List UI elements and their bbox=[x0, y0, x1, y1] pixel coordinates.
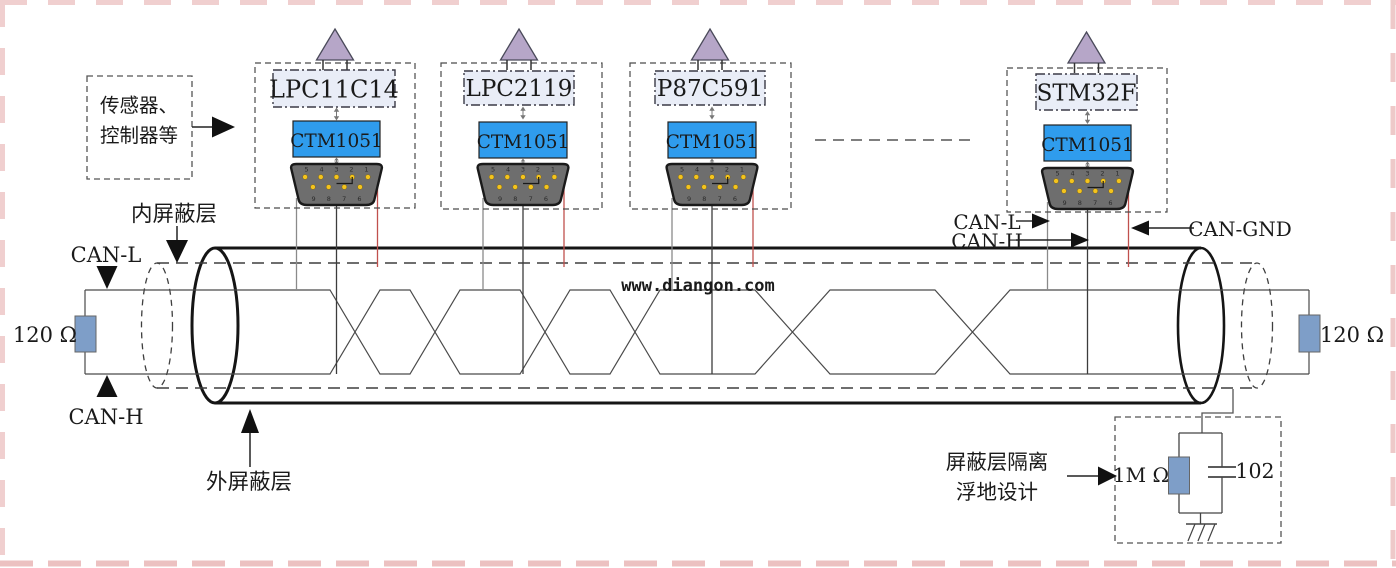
outer-shield-arrow bbox=[241, 409, 259, 433]
db9-pins-top-3: 5 4 3 2 1 bbox=[680, 166, 744, 174]
label-can-l-left: CAN-L bbox=[71, 243, 142, 289]
outer-shield bbox=[192, 248, 1224, 403]
inner-shield-arrow bbox=[166, 240, 188, 263]
can-bus-topology-diagram: 120 Ω 120 Ω 1M Ω 102 屏蔽层隔离 浮地设计 bbox=[0, 0, 1396, 568]
svg-text:CAN-H: CAN-H bbox=[68, 405, 143, 429]
transceiver-label-4: CTM1051 bbox=[1041, 135, 1134, 156]
ground-resistor bbox=[1169, 457, 1190, 494]
terminator-left: 120 Ω bbox=[13, 290, 96, 374]
can-node-3: P87C591 CTM1051 5 4 3 2 1 9 8 7 6 bbox=[630, 29, 791, 209]
svg-text:内屏蔽层: 内屏蔽层 bbox=[131, 202, 217, 227]
terminator-resistor-right bbox=[1299, 315, 1320, 352]
sensor-label-line2: 控制器等 bbox=[100, 124, 178, 147]
svg-text:CAN-H: CAN-H bbox=[951, 229, 1022, 253]
sensor-label-line1: 传感器、 bbox=[100, 94, 178, 117]
db9-pins-top-1: 5 4 3 2 1 bbox=[305, 166, 369, 174]
mcu-label-3: P87C591 bbox=[657, 76, 763, 102]
sensor-box: 传感器、 控制器等 bbox=[87, 76, 235, 179]
db9-pins-top-2: 5 4 3 2 1 bbox=[491, 166, 555, 174]
ground-capacitor bbox=[1208, 467, 1236, 477]
terminator-right: 120 Ω bbox=[1299, 290, 1384, 374]
bus-link-arrow-icon bbox=[1085, 111, 1090, 124]
terminator-left-label: 120 Ω bbox=[13, 323, 77, 347]
bus-link-arrow-icon bbox=[520, 107, 525, 120]
label-can-gnd: CAN-GND bbox=[1131, 217, 1292, 241]
label-inner-shield: 内屏蔽层 bbox=[131, 202, 217, 263]
shield-note-line1: 屏蔽层隔离 bbox=[946, 450, 1049, 474]
transceiver-label-3: CTM1051 bbox=[666, 132, 759, 153]
svg-text:外屏蔽层: 外屏蔽层 bbox=[206, 470, 292, 495]
bus-link-arrow-icon bbox=[334, 108, 339, 121]
can-h-node-arrow bbox=[1071, 233, 1089, 248]
label-can-h-left: CAN-H bbox=[68, 375, 143, 429]
can-node-1: LPC11C14 CTM1051 5 4 3 2 1 9 8 7 6 bbox=[255, 29, 415, 208]
terminator-resistor-left bbox=[75, 316, 96, 352]
can-h-left-arrow bbox=[97, 375, 118, 397]
antenna-icon bbox=[501, 29, 538, 70]
shield-note: 屏蔽层隔离 浮地设计 bbox=[946, 450, 1117, 504]
db9-pins-top-4: 5 4 3 2 1 bbox=[1056, 170, 1120, 178]
bus-link-arrow-icon bbox=[709, 107, 714, 120]
antenna-icon bbox=[1068, 32, 1105, 73]
can-gnd-arrow bbox=[1131, 221, 1149, 236]
sensor-arrow bbox=[212, 117, 235, 138]
watermark: www.diangon.com bbox=[621, 276, 775, 296]
ground-resistor-label: 1M Ω bbox=[1113, 463, 1169, 487]
mcu-label-2: LPC2119 bbox=[466, 76, 573, 102]
antenna-icon bbox=[317, 29, 354, 70]
svg-text:CAN-GND: CAN-GND bbox=[1188, 217, 1292, 241]
can-node-2: LPC2119 CTM1051 5 4 3 2 1 9 8 7 6 bbox=[441, 29, 602, 209]
label-outer-shield: 外屏蔽层 bbox=[206, 409, 292, 495]
terminator-right-label: 120 Ω bbox=[1320, 323, 1384, 347]
transceiver-label-1: CTM1051 bbox=[290, 131, 383, 152]
svg-text:CAN-L: CAN-L bbox=[71, 243, 142, 267]
shield-ground-circuit: 1M Ω 102 bbox=[1113, 389, 1281, 543]
antenna-icon bbox=[692, 29, 729, 70]
diagram-canvas: 120 Ω 120 Ω 1M Ω 102 屏蔽层隔离 浮地设计 bbox=[0, 0, 1396, 568]
shield-note-line2: 浮地设计 bbox=[956, 480, 1038, 504]
twisted-pair bbox=[85, 290, 1309, 374]
mcu-label-1: LPC11C14 bbox=[269, 76, 399, 104]
can-node-4: STM32F CTM1051 5 4 3 2 1 9 8 7 6 bbox=[1007, 32, 1167, 212]
ground-capacitor-label: 102 bbox=[1235, 459, 1274, 483]
transceiver-label-2: CTM1051 bbox=[477, 132, 570, 153]
mcu-label-4: STM32F bbox=[1037, 81, 1137, 107]
can-l-left-arrow bbox=[97, 266, 118, 289]
